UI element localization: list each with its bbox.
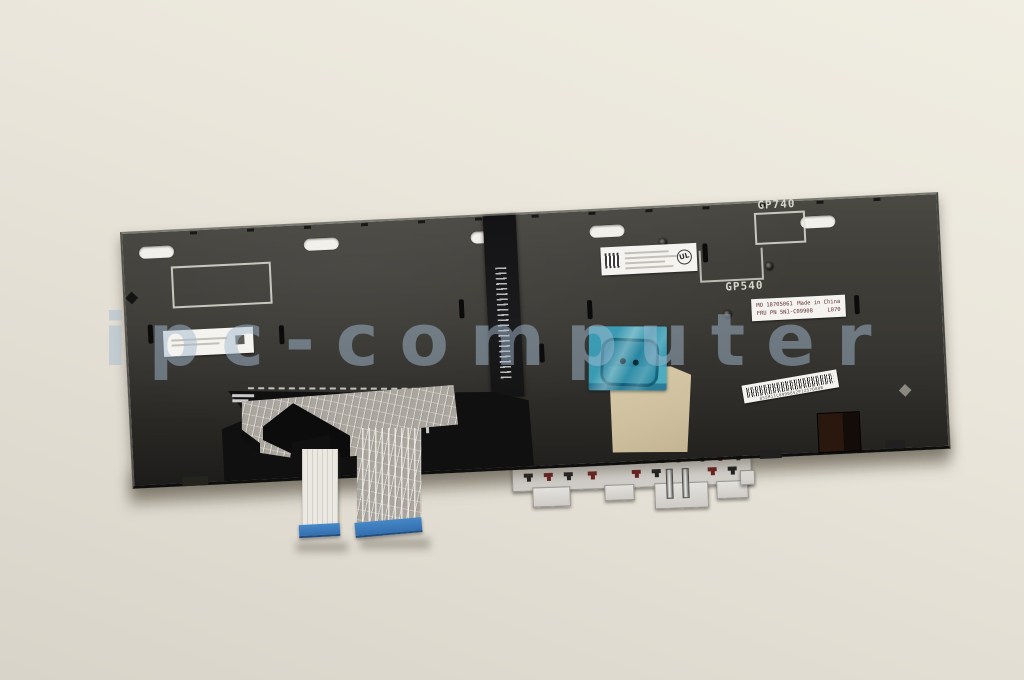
alignment-diamond xyxy=(899,384,912,397)
solder-pad xyxy=(588,471,597,475)
trackpoint-cover-tape xyxy=(589,326,667,390)
screw-slot xyxy=(139,245,175,259)
solder-pad xyxy=(632,470,641,474)
connector-hole xyxy=(620,358,626,364)
info-lot: L070 xyxy=(827,307,841,315)
mount-slot xyxy=(279,325,285,344)
backlight-flex-tail xyxy=(483,215,525,398)
bracket-tab xyxy=(740,470,756,486)
serial-sticker xyxy=(163,327,254,357)
label-print xyxy=(625,260,665,264)
bracket-tab xyxy=(532,486,571,507)
rivet xyxy=(724,310,732,318)
screw-slot xyxy=(589,224,625,238)
label-print xyxy=(625,255,677,260)
flex-dark-corner xyxy=(237,426,260,469)
trackpoint-connector xyxy=(600,337,660,387)
marking-gp540: GP540 xyxy=(713,278,776,294)
flex-tail-print xyxy=(495,267,511,379)
solder-pad xyxy=(564,472,573,476)
barcode-label: 8S5M11C09908S2P1Z57D00B xyxy=(742,369,840,403)
printed-outline-gp740 xyxy=(754,211,807,245)
mount-slot xyxy=(459,299,465,318)
flex-cable-sheet xyxy=(235,380,465,545)
alignment-diamond xyxy=(125,292,138,305)
edge-tab xyxy=(759,449,781,459)
ul-logo-icon: UL xyxy=(675,248,693,266)
mount-slot xyxy=(587,300,593,319)
mount-slot xyxy=(854,295,860,314)
connector-window xyxy=(817,411,862,453)
ul-cert-label: UL xyxy=(600,243,697,276)
ffc-cable xyxy=(302,449,339,525)
info-fru-pn: FRU PN 5N1-C09908 xyxy=(757,308,814,318)
flex-cable-assembly xyxy=(235,380,465,545)
page-background: { "image": { "subject": "laptop keyboard… xyxy=(0,0,1024,680)
mount-slot xyxy=(539,343,545,362)
flex-trace-lines xyxy=(357,428,421,530)
bracket-prong xyxy=(666,469,674,499)
edge-tab xyxy=(182,476,208,486)
solder-pad xyxy=(652,469,661,473)
bracket-prong xyxy=(682,468,690,498)
qr-code-icon xyxy=(605,253,621,269)
label-print xyxy=(625,265,673,269)
screw-slot xyxy=(304,237,340,251)
solder-pad xyxy=(544,473,553,477)
mount-slot xyxy=(702,243,708,262)
tape-edge xyxy=(589,383,667,390)
solder-pad xyxy=(728,466,737,470)
printed-outline xyxy=(171,262,273,309)
printed-outline-gp540 xyxy=(699,248,764,283)
sticker-print xyxy=(172,342,220,346)
sticker-barcode-square xyxy=(235,335,244,344)
fru-info-label: MO 18705061 Made in China FRU PN 5N1-C09… xyxy=(751,295,846,322)
mount-slot xyxy=(148,325,154,344)
sticker-print xyxy=(171,337,227,342)
solder-pad xyxy=(708,467,717,471)
solder-pad xyxy=(524,473,533,477)
edge-tab xyxy=(885,440,905,449)
label-print xyxy=(625,250,669,254)
connector-hole xyxy=(633,359,639,365)
rivet xyxy=(765,262,773,270)
ffc-connector-left xyxy=(299,522,341,537)
bracket-tab xyxy=(604,484,635,501)
